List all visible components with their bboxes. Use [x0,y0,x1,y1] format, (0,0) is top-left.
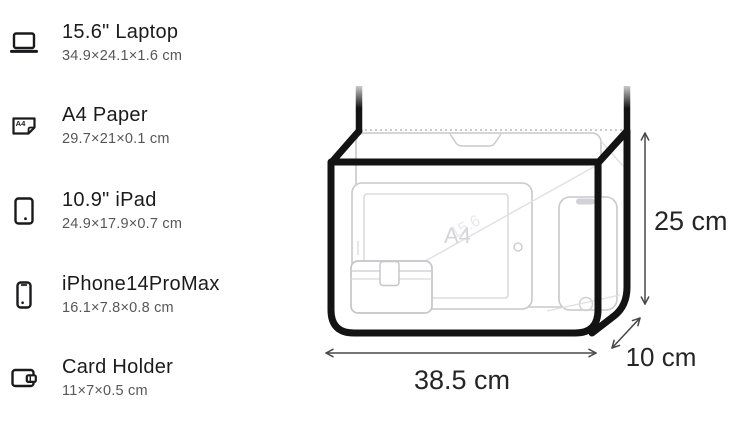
size-comparison-infographic: 15.6" Laptop 34.9×24.1×1.6 cm A4 A4 Pape… [0,0,750,426]
width-dimension-arrow [326,349,596,356]
iphone-outline [559,197,617,311]
width-dimension-label: 38.5 cm [414,365,510,395]
card-holder-outline [351,261,432,313]
depth-dimension-label: 10 cm [626,342,697,372]
height-dimension-arrow [641,133,648,304]
a4-watermark: A4 [444,223,471,248]
height-dimension-label: 25 cm [654,206,728,236]
bag-straps [359,86,627,132]
bag-diagram: 15.6 A4 [0,0,750,426]
